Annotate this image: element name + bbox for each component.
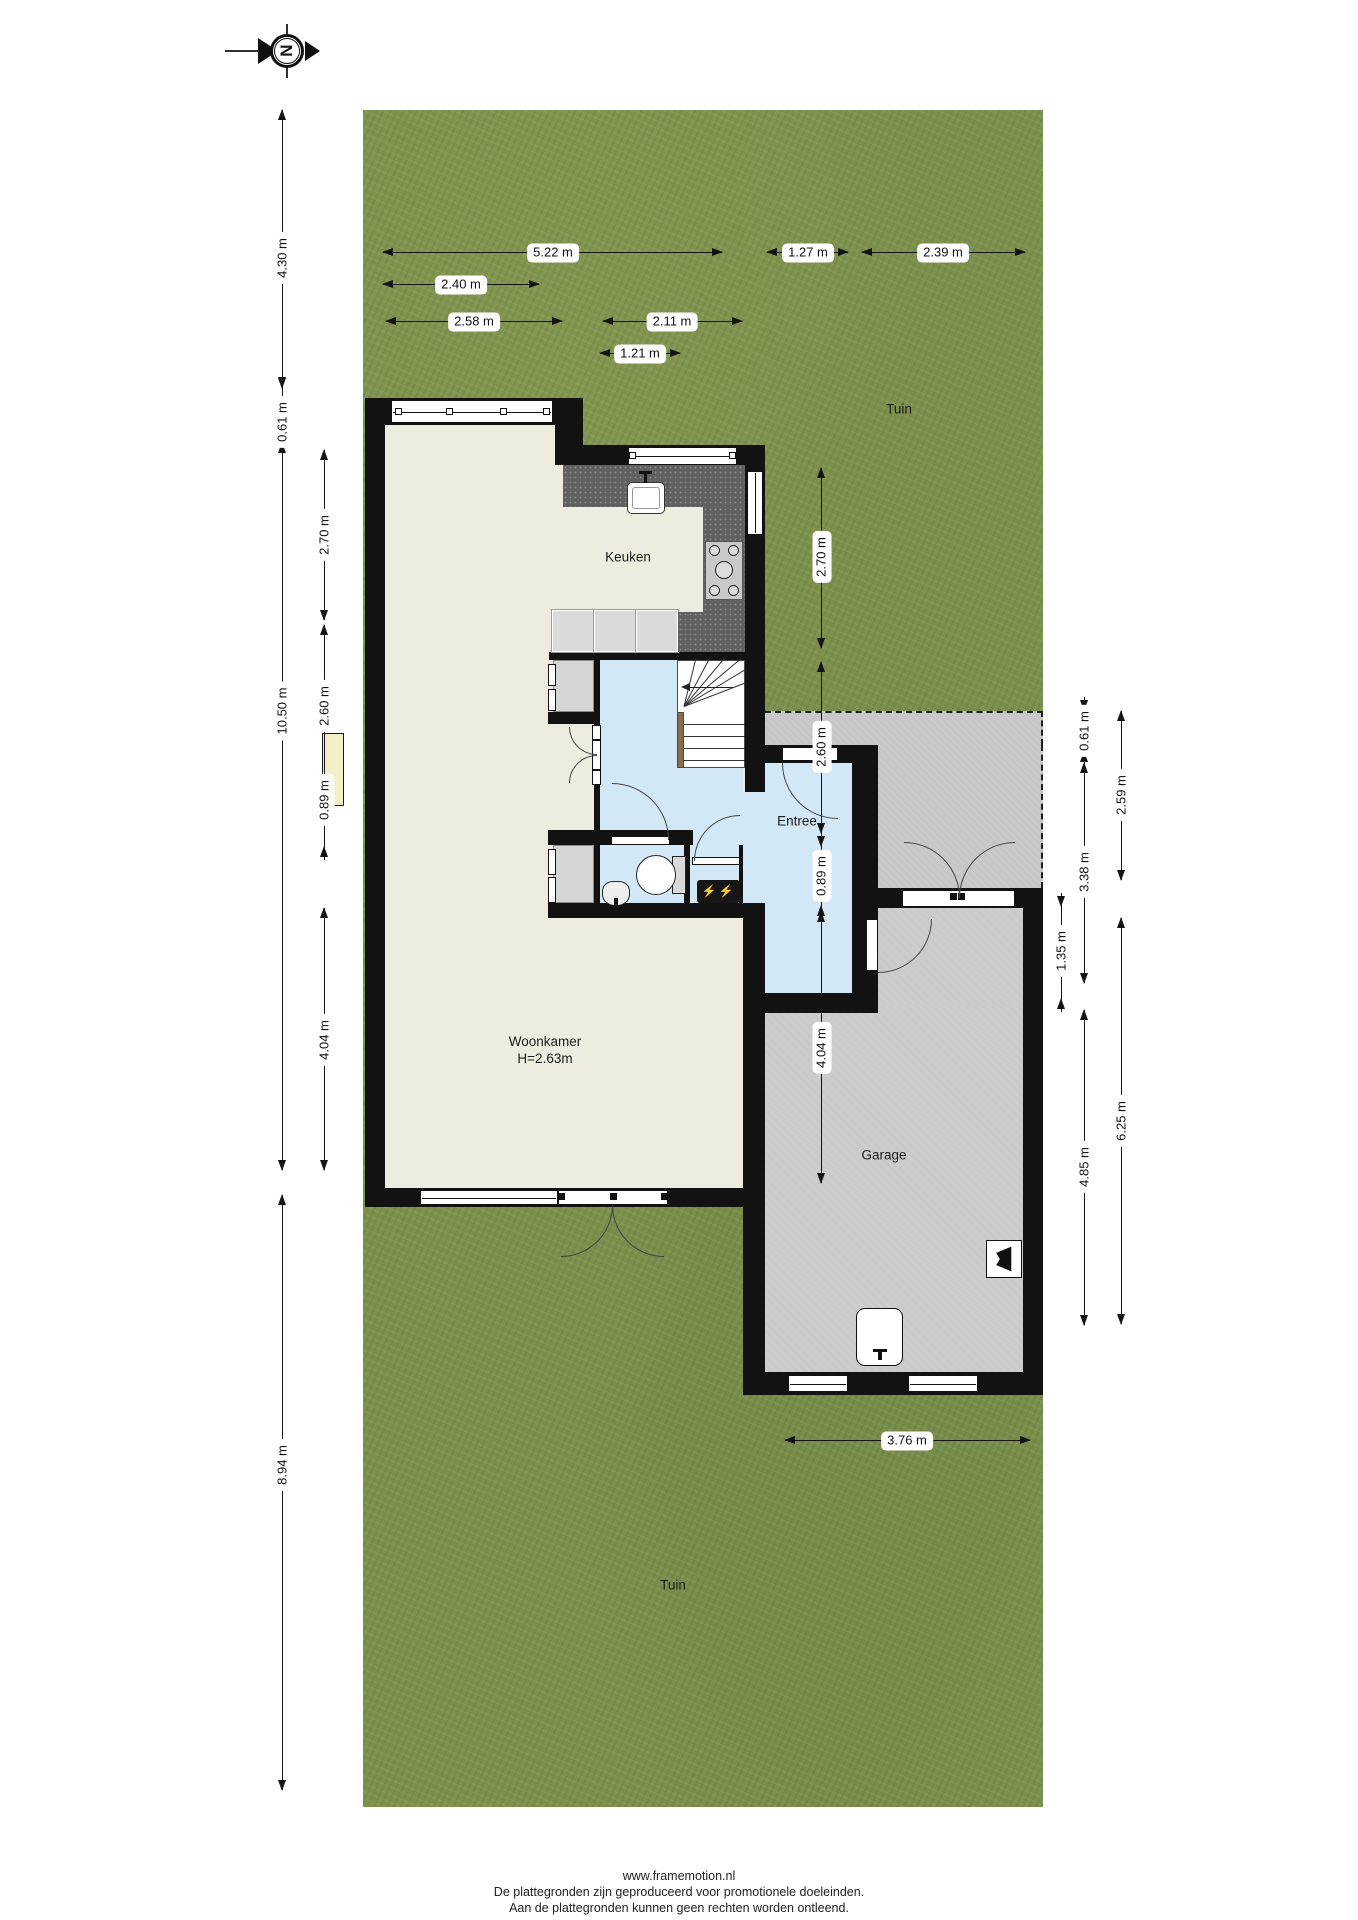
room-label-keuken: Keuken — [605, 550, 651, 567]
room-label-garage: Garage — [861, 1148, 906, 1165]
wall-unit-glyph — [991, 1245, 1017, 1273]
room-label-entree: Entree — [777, 814, 817, 831]
dim-label: 0.89 m — [813, 850, 832, 902]
dim-label: 2.40 m — [435, 276, 487, 295]
dim-label: 2.11 m — [647, 313, 698, 332]
wall — [1023, 888, 1043, 1395]
wall — [549, 652, 745, 660]
closet-door — [548, 877, 556, 903]
sink-tap-bar — [639, 471, 652, 474]
boiler-tap — [878, 1351, 882, 1360]
burner — [709, 545, 720, 556]
woonkamer-height: H=2.63m — [517, 1051, 572, 1066]
stair-step — [684, 748, 745, 749]
burner — [715, 561, 733, 579]
kitchen-cabinet — [552, 610, 594, 652]
floor-entry-passage — [743, 792, 765, 903]
footer-disclaimer-2: Aan de plattegronden kunnen geen rechten… — [0, 1900, 1358, 1916]
dim-label: 4.30 m — [274, 232, 293, 284]
window-mullion — [729, 452, 736, 459]
dim-label: 4.85 m — [1076, 1141, 1095, 1193]
compass-rose: N — [270, 34, 304, 68]
burner — [709, 585, 720, 596]
boiler-tap-bar — [873, 1349, 887, 1352]
door-tick — [661, 1193, 668, 1200]
dim-label: 10.50 m — [274, 682, 293, 741]
room-label-tuin-top: Tuin — [886, 402, 912, 419]
wall — [365, 398, 385, 1207]
window-mullion — [395, 408, 402, 415]
wall — [548, 712, 600, 724]
window-mullion — [500, 408, 507, 415]
fuse-box-icon: ⚡⚡ — [697, 880, 740, 903]
stair-step — [684, 736, 745, 737]
dim-label: 1.27 m — [782, 244, 834, 263]
garage-inner-door — [866, 919, 878, 971]
wall — [594, 658, 600, 912]
wall — [743, 903, 765, 1395]
dim-label: 2.60 m — [316, 680, 335, 732]
window-mullion — [629, 452, 636, 459]
door-tick — [558, 1193, 565, 1200]
dim-label: 0.89 m — [316, 774, 335, 826]
paved-yard-upper — [765, 711, 1043, 745]
dim-label: 3.76 m — [881, 1432, 933, 1451]
dim-label: 4.04 m — [316, 1014, 335, 1066]
room-label-woonkamer: Woonkamer H=2.63m — [509, 1034, 582, 1068]
dim-label: 0.61 m — [1076, 705, 1095, 757]
dim-label: 2.39 m — [917, 244, 969, 263]
dim-label: 2.70 m — [316, 509, 335, 561]
living-window — [420, 1190, 558, 1205]
garage-window — [908, 1375, 978, 1392]
footer-url: www.framemotion.nl — [0, 1868, 1358, 1884]
stove — [705, 541, 743, 600]
closet-door — [548, 689, 556, 711]
compass-north-letter: N — [277, 44, 297, 56]
kitchen-cabinet — [636, 610, 678, 652]
basin-tap — [614, 898, 618, 906]
closet — [553, 660, 594, 712]
burner — [728, 585, 739, 596]
toilet-bowl — [636, 855, 676, 895]
stair-direction-arrow — [681, 683, 690, 691]
woonkamer-name: Woonkamer — [509, 1034, 582, 1049]
kitchen-cabinet-dark — [678, 612, 745, 652]
floorplan-page: N — [0, 0, 1358, 1920]
room-label-tuin-bottom: Tuin — [660, 1578, 686, 1595]
dim-label: 0.61 m — [274, 396, 293, 448]
dim-label: 2.60 m — [813, 721, 832, 773]
footer: www.framemotion.nl De plattegronden zijn… — [0, 1868, 1358, 1916]
dim-label: 3.38 m — [1076, 846, 1095, 898]
stair-direction-line — [689, 687, 733, 688]
dim-line-8-94 — [282, 1195, 283, 1790]
dim-label: 8.94 m — [274, 1439, 293, 1491]
burner — [728, 545, 739, 556]
wall — [548, 903, 743, 918]
dim-label: 6.25 m — [1113, 1095, 1132, 1147]
stair-step — [684, 724, 745, 725]
window-mullion — [446, 408, 453, 415]
dim-label: 4.04 m — [813, 1022, 832, 1074]
stair-step — [684, 760, 745, 761]
dim-label: 2.58 m — [448, 313, 500, 332]
boiler-unit — [856, 1308, 903, 1366]
dim-label: 5.22 m — [527, 244, 579, 263]
closet-door — [548, 664, 556, 686]
dim-label: 2.70 m — [813, 531, 832, 583]
sink-basin — [632, 487, 660, 509]
kitchen-cabinet — [594, 610, 636, 652]
kitchen-window — [628, 447, 737, 465]
stair-stringer — [677, 712, 684, 768]
wall-unit-icon — [986, 1240, 1022, 1278]
window-mullion — [543, 408, 550, 415]
compass-tail — [305, 41, 320, 61]
door-tick — [610, 1193, 617, 1200]
garage-window — [788, 1375, 848, 1392]
dim-label: 1.21 m — [614, 345, 666, 364]
dim-label: 2.59 m — [1113, 769, 1132, 821]
footer-disclaimer-1: De plattegronden zijn geproduceerd voor … — [0, 1884, 1358, 1900]
closet — [553, 845, 594, 903]
closet-door — [548, 849, 556, 875]
kitchen-side-window — [747, 471, 763, 535]
kitchen-sink — [627, 482, 665, 514]
bay-window — [391, 400, 553, 423]
dim-line-10-50 — [282, 443, 283, 1170]
dim-label: 1.35 m — [1053, 925, 1072, 977]
